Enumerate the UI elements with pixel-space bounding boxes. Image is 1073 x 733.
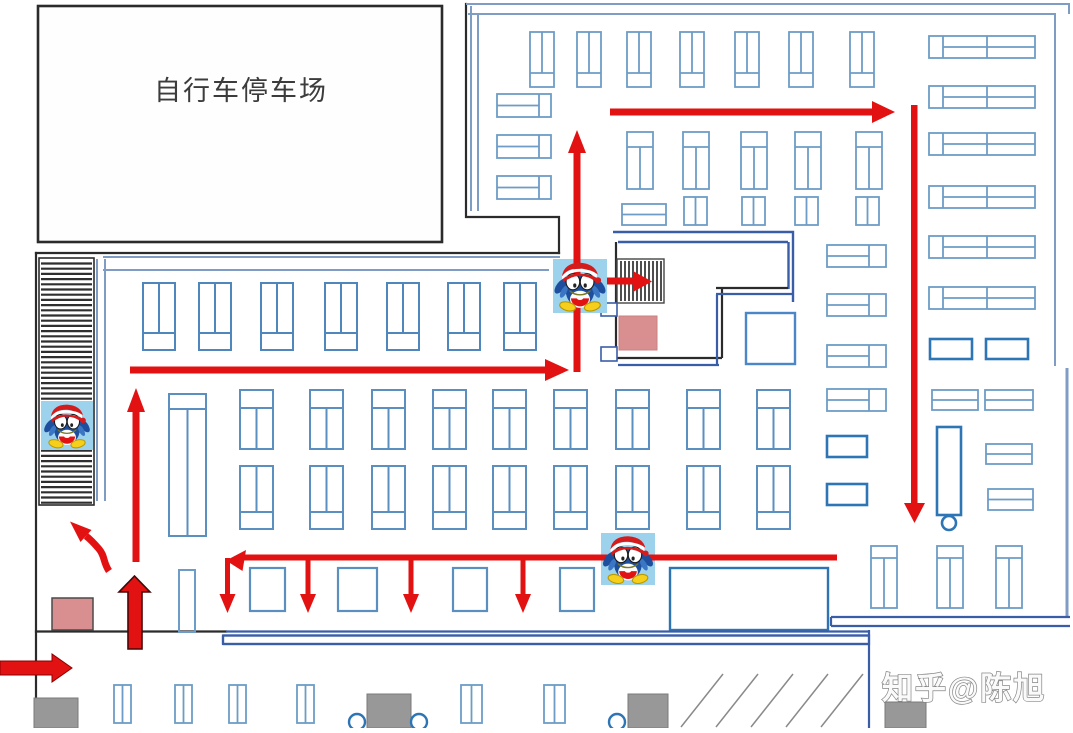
svg-text:自行车停车场: 自行车停车场: [154, 76, 328, 106]
svg-text:知乎@陈旭: 知乎@陈旭: [882, 671, 1046, 706]
